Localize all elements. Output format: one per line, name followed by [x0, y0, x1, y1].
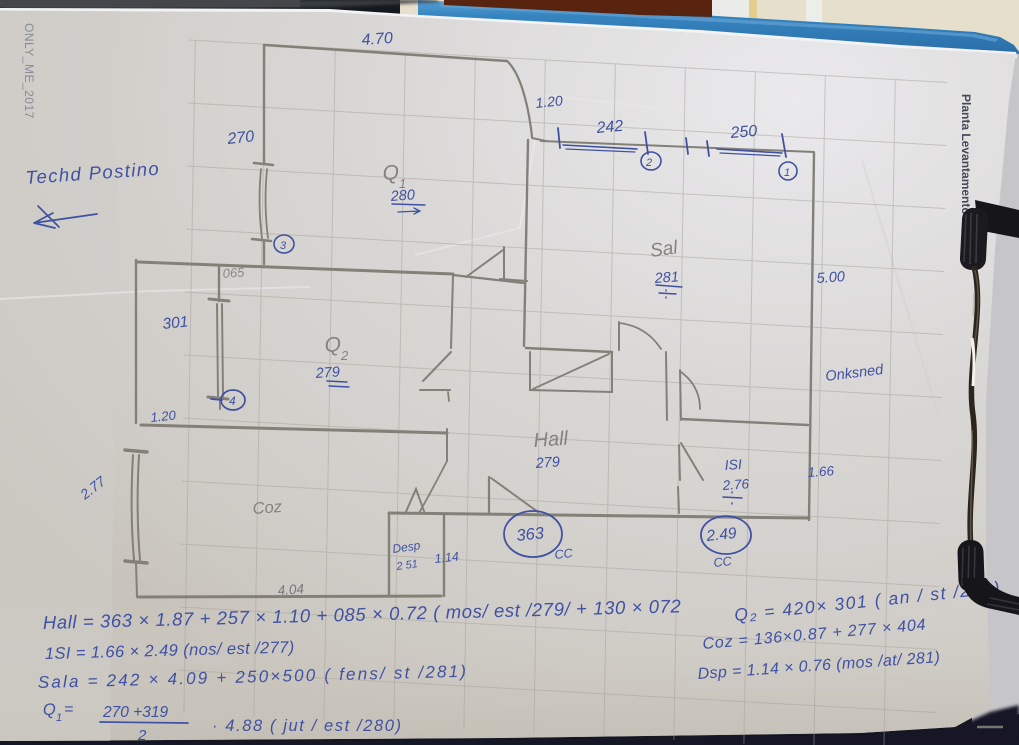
svg-text:2: 2	[137, 727, 147, 744]
svg-text:Sal: Sal	[649, 237, 680, 262]
svg-text:1: 1	[784, 167, 790, 179]
svg-text:279: 279	[314, 364, 340, 382]
svg-text:Q: Q	[324, 333, 342, 357]
svg-text:301: 301	[162, 313, 190, 333]
svg-text:4.04: 4.04	[277, 581, 304, 598]
svg-text:279: 279	[534, 454, 560, 472]
svg-text:1.66: 1.66	[807, 463, 835, 480]
svg-text:CC: CC	[713, 554, 733, 570]
svg-text:280: 280	[389, 187, 415, 205]
svg-text:Q: Q	[43, 701, 56, 719]
svg-text:4: 4	[229, 394, 236, 408]
svg-text:Planta Levantamento: Planta Levantamento	[959, 94, 973, 215]
svg-text:1.14: 1.14	[434, 550, 460, 566]
svg-text:1.20: 1.20	[150, 407, 177, 425]
svg-text:363: 363	[516, 524, 546, 545]
svg-text:· 4.88 ( jut / est /280): · 4.88 ( jut / est /280)	[212, 717, 403, 735]
svg-text:270: 270	[226, 128, 255, 148]
svg-text:2: 2	[340, 348, 349, 363]
svg-text:2: 2	[645, 157, 652, 169]
svg-text:5.00: 5.00	[816, 269, 845, 287]
svg-text:1.20: 1.20	[535, 92, 564, 111]
svg-text:065: 065	[222, 264, 245, 281]
svg-text:ONLY_ME_2017: ONLY_ME_2017	[22, 23, 36, 119]
svg-text:Q: Q	[382, 161, 400, 185]
svg-text:Hall: Hall	[533, 428, 569, 452]
svg-text:Coz: Coz	[252, 498, 283, 518]
svg-text:1: 1	[56, 712, 62, 724]
svg-text:=: =	[64, 701, 73, 718]
svg-text:2.49: 2.49	[705, 525, 738, 545]
svg-text:4.70: 4.70	[361, 30, 393, 49]
svg-text:ISI: ISI	[724, 456, 742, 473]
svg-text:3: 3	[280, 240, 287, 252]
svg-text:2.76: 2.76	[721, 476, 750, 493]
svg-text:281: 281	[653, 269, 679, 287]
svg-text:250: 250	[729, 123, 758, 142]
svg-text:CC: CC	[554, 546, 574, 562]
svg-text:270 +319: 270 +319	[102, 704, 168, 721]
svg-text:242: 242	[595, 118, 624, 137]
